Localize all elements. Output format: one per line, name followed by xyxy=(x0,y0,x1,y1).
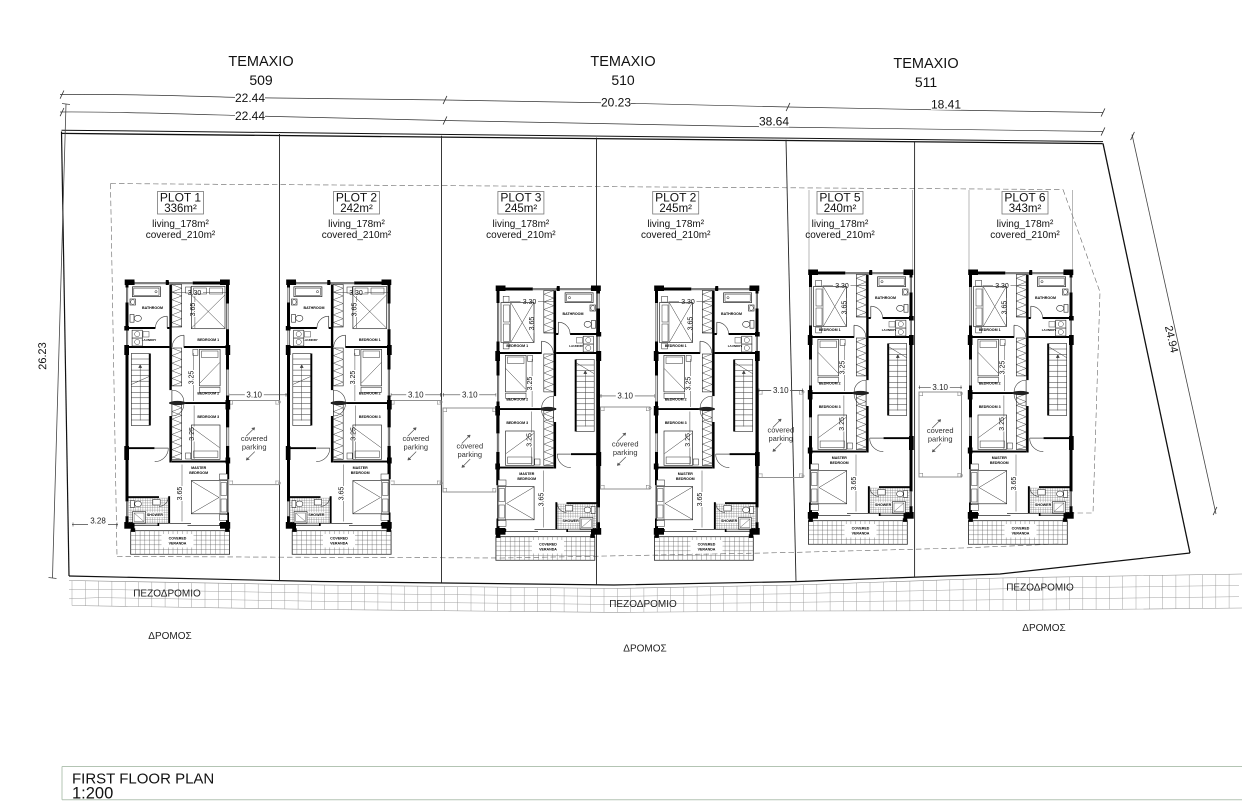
svg-text:covered_210m²: covered_210m² xyxy=(805,230,875,241)
svg-text:509: 509 xyxy=(249,72,273,88)
svg-text:covered_210m²: covered_210m² xyxy=(641,230,711,241)
svg-text:BEDROOM 3: BEDROOM 3 xyxy=(979,405,1001,409)
svg-text:BEDROOM: BEDROOM xyxy=(676,477,695,481)
svg-text:VERANDA: VERANDA xyxy=(852,531,870,535)
svg-text:BEDROOM 3: BEDROOM 3 xyxy=(359,415,381,419)
svg-text:3.65: 3.65 xyxy=(190,303,197,317)
svg-text:parking: parking xyxy=(242,443,267,452)
svg-text:BATHROOM: BATHROOM xyxy=(563,312,584,316)
svg-text:3.65: 3.65 xyxy=(851,477,858,491)
svg-text:3.25: 3.25 xyxy=(351,427,358,441)
svg-text:26.23: 26.23 xyxy=(37,342,49,370)
svg-text:parking: parking xyxy=(768,434,793,443)
svg-text:LAUNDRY: LAUNDRY xyxy=(303,338,318,342)
svg-text:ΠΕΖΟΔΡΟΜΙΟ: ΠΕΖΟΔΡΟΜΙΟ xyxy=(133,589,201,600)
svg-text:living_178m²: living_178m² xyxy=(328,219,385,230)
svg-text:3.25: 3.25 xyxy=(839,417,846,431)
svg-text:3.30: 3.30 xyxy=(995,283,1009,290)
svg-text:BEDROOM: BEDROOM xyxy=(990,461,1009,465)
svg-text:BEDROOM 2: BEDROOM 2 xyxy=(819,382,841,386)
svg-text:parking: parking xyxy=(403,443,428,452)
svg-text:LAUNDRY: LAUNDRY xyxy=(728,344,743,348)
svg-text:parking: parking xyxy=(928,435,953,444)
svg-text:COVERED: COVERED xyxy=(539,542,557,546)
svg-text:3.10: 3.10 xyxy=(246,390,262,399)
svg-text:3.65: 3.65 xyxy=(842,301,849,315)
svg-text:ΤΕΜΑΧΙΟ: ΤΕΜΑΧΙΟ xyxy=(590,54,655,70)
svg-text:MASTER: MASTER xyxy=(678,472,694,476)
svg-text:245m²: 245m² xyxy=(505,203,538,215)
svg-text:BATHROOM: BATHROOM xyxy=(721,312,742,316)
svg-text:BEDROOM 2: BEDROOM 2 xyxy=(197,392,219,396)
svg-text:VERANDA: VERANDA xyxy=(539,547,557,551)
svg-text:BEDROOM: BEDROOM xyxy=(351,471,370,475)
svg-text:COVERED: COVERED xyxy=(169,536,187,540)
svg-text:covered_210m²: covered_210m² xyxy=(146,230,216,241)
svg-text:3.65: 3.65 xyxy=(1011,477,1018,491)
svg-text:living_178m²: living_178m² xyxy=(812,219,869,230)
svg-text:covered_210m²: covered_210m² xyxy=(322,230,392,241)
svg-text:3.65: 3.65 xyxy=(539,493,546,507)
svg-text:living_178m²: living_178m² xyxy=(647,219,704,230)
svg-text:3.25: 3.25 xyxy=(350,371,357,385)
svg-text:3.65: 3.65 xyxy=(339,487,346,501)
svg-text:VERANDA: VERANDA xyxy=(1012,531,1030,535)
svg-text:3.25: 3.25 xyxy=(527,377,534,391)
svg-text:BEDROOM 1: BEDROOM 1 xyxy=(979,328,1001,332)
svg-text:VERANDA: VERANDA xyxy=(169,541,187,545)
svg-text:3.30: 3.30 xyxy=(681,299,695,306)
svg-text:ΔΡΟΜΟΣ: ΔΡΟΜΟΣ xyxy=(623,644,666,655)
svg-text:BEDROOM 3: BEDROOM 3 xyxy=(197,415,219,419)
svg-text:3.30: 3.30 xyxy=(349,290,363,297)
svg-text:3.65: 3.65 xyxy=(688,317,695,331)
svg-text:living_178m²: living_178m² xyxy=(152,219,209,230)
svg-text:COVERED: COVERED xyxy=(852,526,870,530)
svg-text:20.23: 20.23 xyxy=(601,95,631,109)
svg-text:BEDROOM 2: BEDROOM 2 xyxy=(665,398,687,402)
svg-text:3.10: 3.10 xyxy=(773,386,789,395)
svg-text:3.65: 3.65 xyxy=(177,487,184,501)
svg-text:3.30: 3.30 xyxy=(188,290,202,297)
svg-text:SHOWER: SHOWER xyxy=(875,503,892,507)
svg-text:BEDROOM 1: BEDROOM 1 xyxy=(359,338,381,342)
svg-text:22.44: 22.44 xyxy=(235,91,265,105)
svg-text:22.44: 22.44 xyxy=(235,109,265,123)
svg-text:343m²: 343m² xyxy=(1009,203,1042,215)
svg-text:18.41: 18.41 xyxy=(931,98,961,112)
svg-text:covered_210m²: covered_210m² xyxy=(990,230,1060,241)
svg-text:COVERED: COVERED xyxy=(698,542,716,546)
svg-text:COVERED: COVERED xyxy=(1012,526,1030,530)
svg-text:covered_210m²: covered_210m² xyxy=(486,230,556,241)
svg-text:SHOWER: SHOWER xyxy=(308,513,325,517)
svg-text:BEDROOM 3: BEDROOM 3 xyxy=(665,421,687,425)
svg-text:SHOWER: SHOWER xyxy=(721,519,738,523)
svg-text:BEDROOM: BEDROOM xyxy=(830,461,849,465)
svg-text:BEDROOM 3: BEDROOM 3 xyxy=(506,421,528,425)
svg-text:3.25: 3.25 xyxy=(686,377,693,391)
svg-text:3.10: 3.10 xyxy=(462,390,478,399)
svg-text:245m²: 245m² xyxy=(659,203,692,215)
svg-text:3.25: 3.25 xyxy=(840,361,847,375)
svg-text:38.64: 38.64 xyxy=(759,115,789,129)
svg-text:3.10: 3.10 xyxy=(617,392,633,401)
svg-text:3.30: 3.30 xyxy=(835,283,849,290)
svg-text:ΠΕΖΟΔΡΟΜΙΟ: ΠΕΖΟΔΡΟΜΙΟ xyxy=(609,599,677,610)
svg-text:511: 511 xyxy=(915,74,938,90)
svg-text:LAUNDRY: LAUNDRY xyxy=(882,328,897,332)
svg-text:COVERED: COVERED xyxy=(330,536,348,540)
svg-text:3.10: 3.10 xyxy=(408,390,424,399)
svg-text:3.25: 3.25 xyxy=(999,417,1006,431)
svg-text:242m²: 242m² xyxy=(340,203,373,215)
svg-text:BATHROOM: BATHROOM xyxy=(875,296,896,300)
svg-text:BEDROOM 1: BEDROOM 1 xyxy=(819,328,841,332)
svg-text:ΤΕΜΑΧΙΟ: ΤΕΜΑΧΙΟ xyxy=(228,54,293,70)
svg-text:BEDROOM 1: BEDROOM 1 xyxy=(506,344,528,348)
svg-text:3.25: 3.25 xyxy=(1000,361,1007,375)
svg-text:ΠΕΖΟΔΡΟΜΙΟ: ΠΕΖΟΔΡΟΜΙΟ xyxy=(1006,583,1074,594)
svg-text:3.10: 3.10 xyxy=(932,383,948,392)
svg-text:LAUNDRY: LAUNDRY xyxy=(142,338,157,342)
svg-text:MASTER: MASTER xyxy=(519,472,535,476)
svg-text:3.25: 3.25 xyxy=(685,433,692,447)
svg-text:BATHROOM: BATHROOM xyxy=(142,306,163,310)
svg-text:336m²: 336m² xyxy=(164,203,197,215)
svg-text:LAUNDRY: LAUNDRY xyxy=(1042,328,1057,332)
svg-text:LAUNDRY: LAUNDRY xyxy=(569,344,584,348)
svg-text:SHOWER: SHOWER xyxy=(147,513,164,517)
svg-text:3.65: 3.65 xyxy=(697,493,704,507)
svg-text:1:200: 1:200 xyxy=(72,785,113,803)
svg-text:3.28: 3.28 xyxy=(90,517,106,526)
svg-text:3.65: 3.65 xyxy=(529,317,536,331)
svg-text:MASTER: MASTER xyxy=(992,456,1008,460)
svg-text:SHOWER: SHOWER xyxy=(563,519,580,523)
svg-text:MASTER: MASTER xyxy=(353,466,369,470)
svg-text:BEDROOM 1: BEDROOM 1 xyxy=(665,344,687,348)
svg-text:BEDROOM 1: BEDROOM 1 xyxy=(197,338,219,342)
svg-text:3.65: 3.65 xyxy=(351,303,358,317)
svg-text:BEDROOM 2: BEDROOM 2 xyxy=(979,382,1001,386)
svg-text:ΔΡΟΜΟΣ: ΔΡΟΜΟΣ xyxy=(148,631,191,642)
svg-text:parking: parking xyxy=(613,448,638,457)
svg-text:parking: parking xyxy=(457,450,482,459)
svg-text:BEDROOM 2: BEDROOM 2 xyxy=(359,392,381,396)
svg-text:MASTER: MASTER xyxy=(191,466,207,470)
svg-text:living_178m²: living_178m² xyxy=(997,219,1054,230)
svg-text:ΤΕΜΑΧΙΟ: ΤΕΜΑΧΙΟ xyxy=(893,56,958,72)
svg-text:ΔΡΟΜΟΣ: ΔΡΟΜΟΣ xyxy=(1022,623,1065,634)
svg-text:living_178m²: living_178m² xyxy=(493,219,550,230)
svg-text:240m²: 240m² xyxy=(824,203,857,215)
svg-text:MASTER: MASTER xyxy=(832,456,848,460)
svg-text:3.30: 3.30 xyxy=(523,299,537,306)
svg-text:BEDROOM 2: BEDROOM 2 xyxy=(506,398,528,402)
svg-text:BEDROOM: BEDROOM xyxy=(189,471,208,475)
svg-text:BATHROOM: BATHROOM xyxy=(1035,296,1056,300)
svg-text:VERANDA: VERANDA xyxy=(330,541,348,545)
svg-text:3.65: 3.65 xyxy=(1002,301,1009,315)
svg-text:BEDROOM 3: BEDROOM 3 xyxy=(819,405,841,409)
svg-text:3.25: 3.25 xyxy=(189,427,196,441)
svg-text:BATHROOM: BATHROOM xyxy=(304,306,325,310)
svg-text:BEDROOM: BEDROOM xyxy=(517,477,536,481)
svg-text:SHOWER: SHOWER xyxy=(1035,503,1052,507)
svg-text:510: 510 xyxy=(611,72,635,88)
svg-text:3.25: 3.25 xyxy=(526,433,533,447)
svg-text:VERANDA: VERANDA xyxy=(698,547,716,551)
svg-text:3.25: 3.25 xyxy=(188,371,195,385)
